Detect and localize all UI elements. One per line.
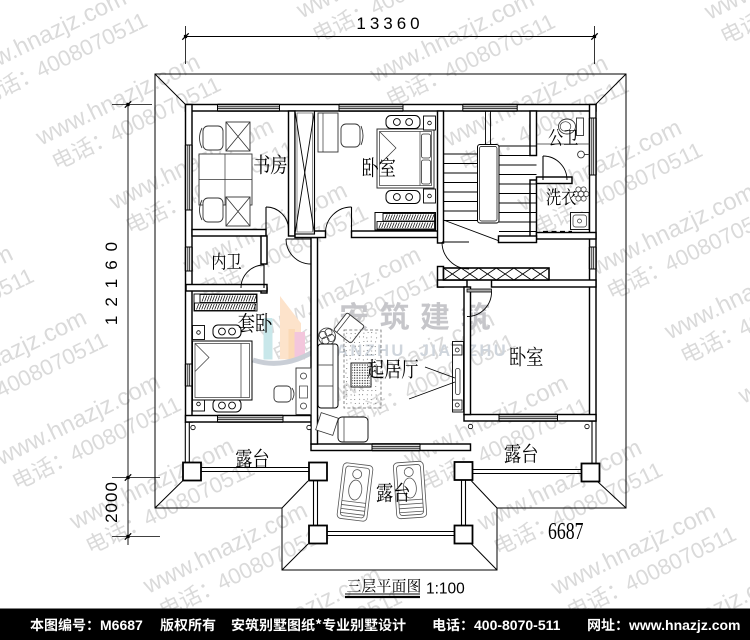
svg-text:2000: 2000: [102, 481, 121, 523]
svg-text:12160: 12160: [102, 233, 121, 325]
svg-text:M6687: M6687: [100, 617, 143, 633]
svg-text:6687: 6687: [548, 517, 584, 544]
svg-text:1:100: 1:100: [426, 581, 465, 598]
svg-text:13360: 13360: [356, 14, 423, 33]
svg-text:400-8070-511: 400-8070-511: [474, 617, 561, 633]
svg-text:ANZHU JIANZHU: ANZHU JIANZHU: [336, 342, 508, 360]
svg-text:www.hnazjz.com: www.hnazjz.com: [628, 617, 741, 633]
